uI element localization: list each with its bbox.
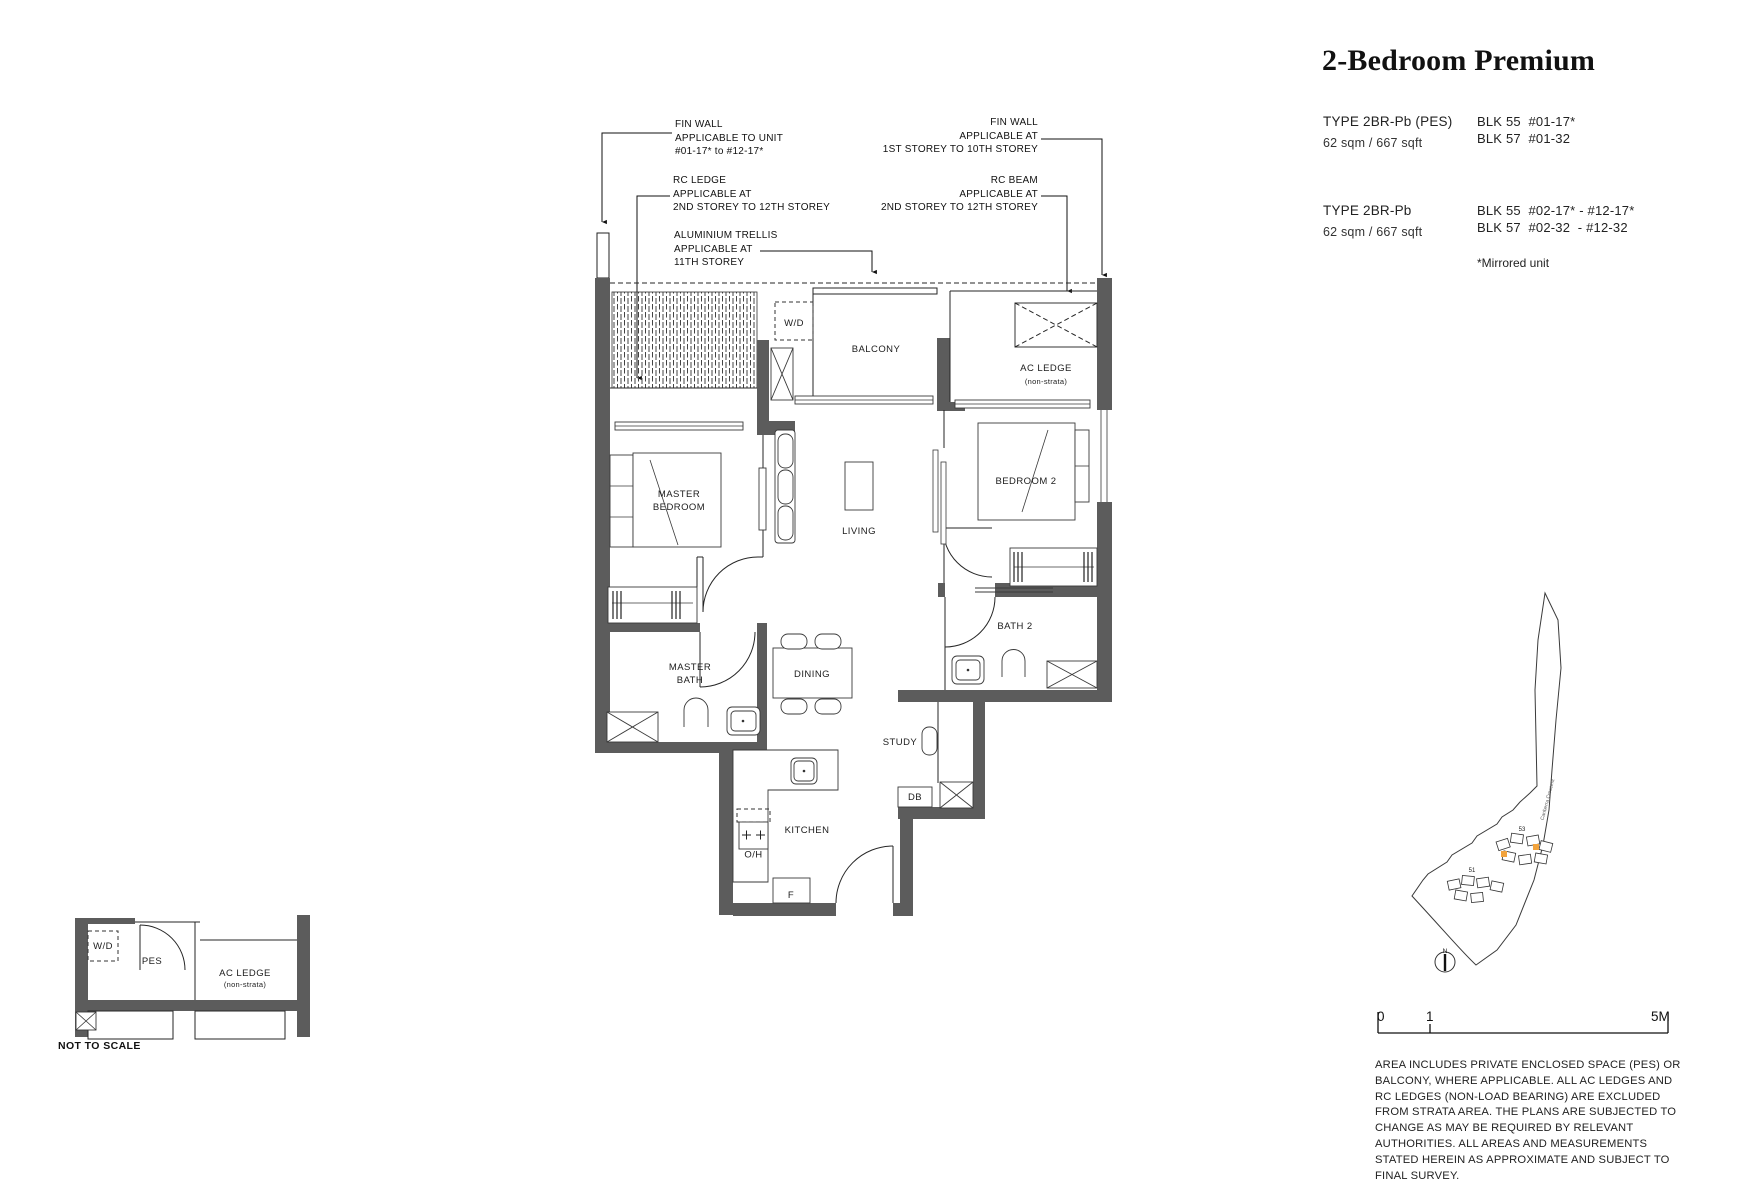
highlight-unit-1: [1501, 851, 1507, 857]
disclaimer-line: CHANGE AS MAY BE REQUIRED BY RELEVANT: [1375, 1121, 1695, 1137]
key-label-wd: W/D: [93, 941, 113, 952]
unit-type-1-blocks: BLK 55 #01-17* BLK 57 #01-32: [1477, 113, 1575, 147]
unit-type-2-label: TYPE 2BR-Pb: [1323, 203, 1422, 218]
label-ac-ledge: AC LEDGE: [1020, 363, 1072, 374]
scale-tick-5m: 5M: [1651, 1009, 1670, 1024]
disclaimer-text: AREA INCLUDES PRIVATE ENCLOSED SPACE (PE…: [1375, 1058, 1695, 1184]
disclaimer-line: RC LEDGES (NON-LOAD BEARING) ARE EXCLUDE…: [1375, 1090, 1695, 1106]
key-label-ac-ledge: AC LEDGE: [219, 968, 271, 979]
page-title: 2-Bedroom Premium: [1322, 44, 1595, 78]
label-balcony: BALCONY: [852, 344, 901, 355]
disclaimer-line: FROM STRATA AREA. THE PLANS ARE SUBJECTE…: [1375, 1105, 1695, 1121]
site-label-53: 53: [1519, 827, 1526, 833]
site-map: 53 51 Canberra Crescent N: [1390, 575, 1600, 985]
label-living: LIVING: [842, 526, 876, 537]
label-master-bath-2: BATH: [677, 675, 703, 686]
scale-bar-lines: [1378, 1012, 1668, 1033]
blk-line: BLK 55 #01-17*: [1477, 113, 1575, 130]
not-to-scale-label: NOT TO SCALE: [58, 1040, 141, 1052]
disclaimer-line: STATED HEREIN AS APPROXIMATE AND SUBJECT…: [1375, 1153, 1695, 1169]
site-boundary: [1412, 593, 1561, 965]
key-plan-walls: [75, 915, 310, 1037]
key-label-pes: PES: [142, 956, 162, 967]
bedroom2-furniture: [975, 423, 1097, 592]
label-master-bedroom-1: MASTER: [658, 489, 700, 500]
unit-type-1: TYPE 2BR-Pb (PES) 62 sqm / 667 sqft: [1323, 114, 1452, 150]
label-master-bedroom-2: BEDROOM: [653, 502, 705, 513]
key-plan-xbox: [76, 1012, 96, 1030]
label-study: STUDY: [883, 737, 918, 748]
label-master-bath-1: MASTER: [669, 662, 711, 673]
mirrored-unit-note: *Mirrored unit: [1477, 256, 1549, 270]
aluminium-trellis-hatch: [612, 292, 757, 388]
disclaimer-line: BALCONY, WHERE APPLICABLE. ALL AC LEDGES…: [1375, 1074, 1695, 1090]
scale-bar: 0 1 5M: [1370, 1000, 1685, 1045]
disclaimer-line: AREA INCLUDES PRIVATE ENCLOSED SPACE (PE…: [1375, 1058, 1695, 1074]
label-db: DB: [908, 792, 922, 803]
north-arrow-icon: N: [1435, 948, 1455, 972]
label-kitchen: KITCHEN: [785, 825, 830, 836]
label-bath2: BATH 2: [997, 621, 1032, 632]
highlight-unit-2: [1533, 844, 1539, 850]
label-ac-ledge-sub: (non-strata): [1025, 377, 1068, 386]
key-label-ac-ledge-sub: (non-strata): [224, 980, 267, 989]
bath2-fixtures: [952, 650, 1097, 689]
unit-type-2-blocks: BLK 55 #02-17* - #12-17* BLK 57 #02-32 -…: [1477, 202, 1635, 236]
fin-wall-stub: [597, 233, 609, 278]
label-fridge: F: [788, 890, 794, 901]
ac-ledge-box: [1015, 303, 1097, 347]
floorplan-page: { "header": { "title": "2-Bedroom Premiu…: [0, 0, 1754, 1202]
site-label-51: 51: [1469, 868, 1476, 874]
blk-line: BLK 57 #02-32 - #12-32: [1477, 219, 1635, 236]
scale-tick-1: 1: [1426, 1009, 1434, 1024]
blk-line: BLK 57 #01-32: [1477, 130, 1575, 147]
north-label: N: [1443, 948, 1448, 955]
key-plan: W/D PES AC LEDGE (non-strata): [50, 905, 350, 1055]
unit-type-2-area: 62 sqm / 667 sqft: [1323, 225, 1422, 239]
unit-type-2: TYPE 2BR-Pb 62 sqm / 667 sqft: [1323, 203, 1422, 239]
shaft-box: [771, 348, 793, 400]
floor-plan: W/D BALCONY AC LEDGE (non-strata) MASTER…: [500, 95, 1140, 935]
master-bath-fixtures: [607, 698, 760, 742]
blk-line: BLK 55 #02-17* - #12-17*: [1477, 202, 1635, 219]
unit-type-1-label: TYPE 2BR-Pb (PES): [1323, 114, 1452, 129]
label-bedroom2: BEDROOM 2: [995, 476, 1056, 487]
disclaimer-line: FINAL SURVEY.: [1375, 1169, 1695, 1185]
unit-type-1-area: 62 sqm / 667 sqft: [1323, 136, 1452, 150]
label-hob: H/O: [744, 848, 762, 859]
label-wd: W/D: [784, 318, 804, 329]
master-bedroom-furniture: [608, 453, 721, 623]
label-dining: DINING: [794, 669, 830, 680]
disclaimer-line: AUTHORITIES. ALL AREAS AND MEASUREMENTS: [1375, 1137, 1695, 1153]
